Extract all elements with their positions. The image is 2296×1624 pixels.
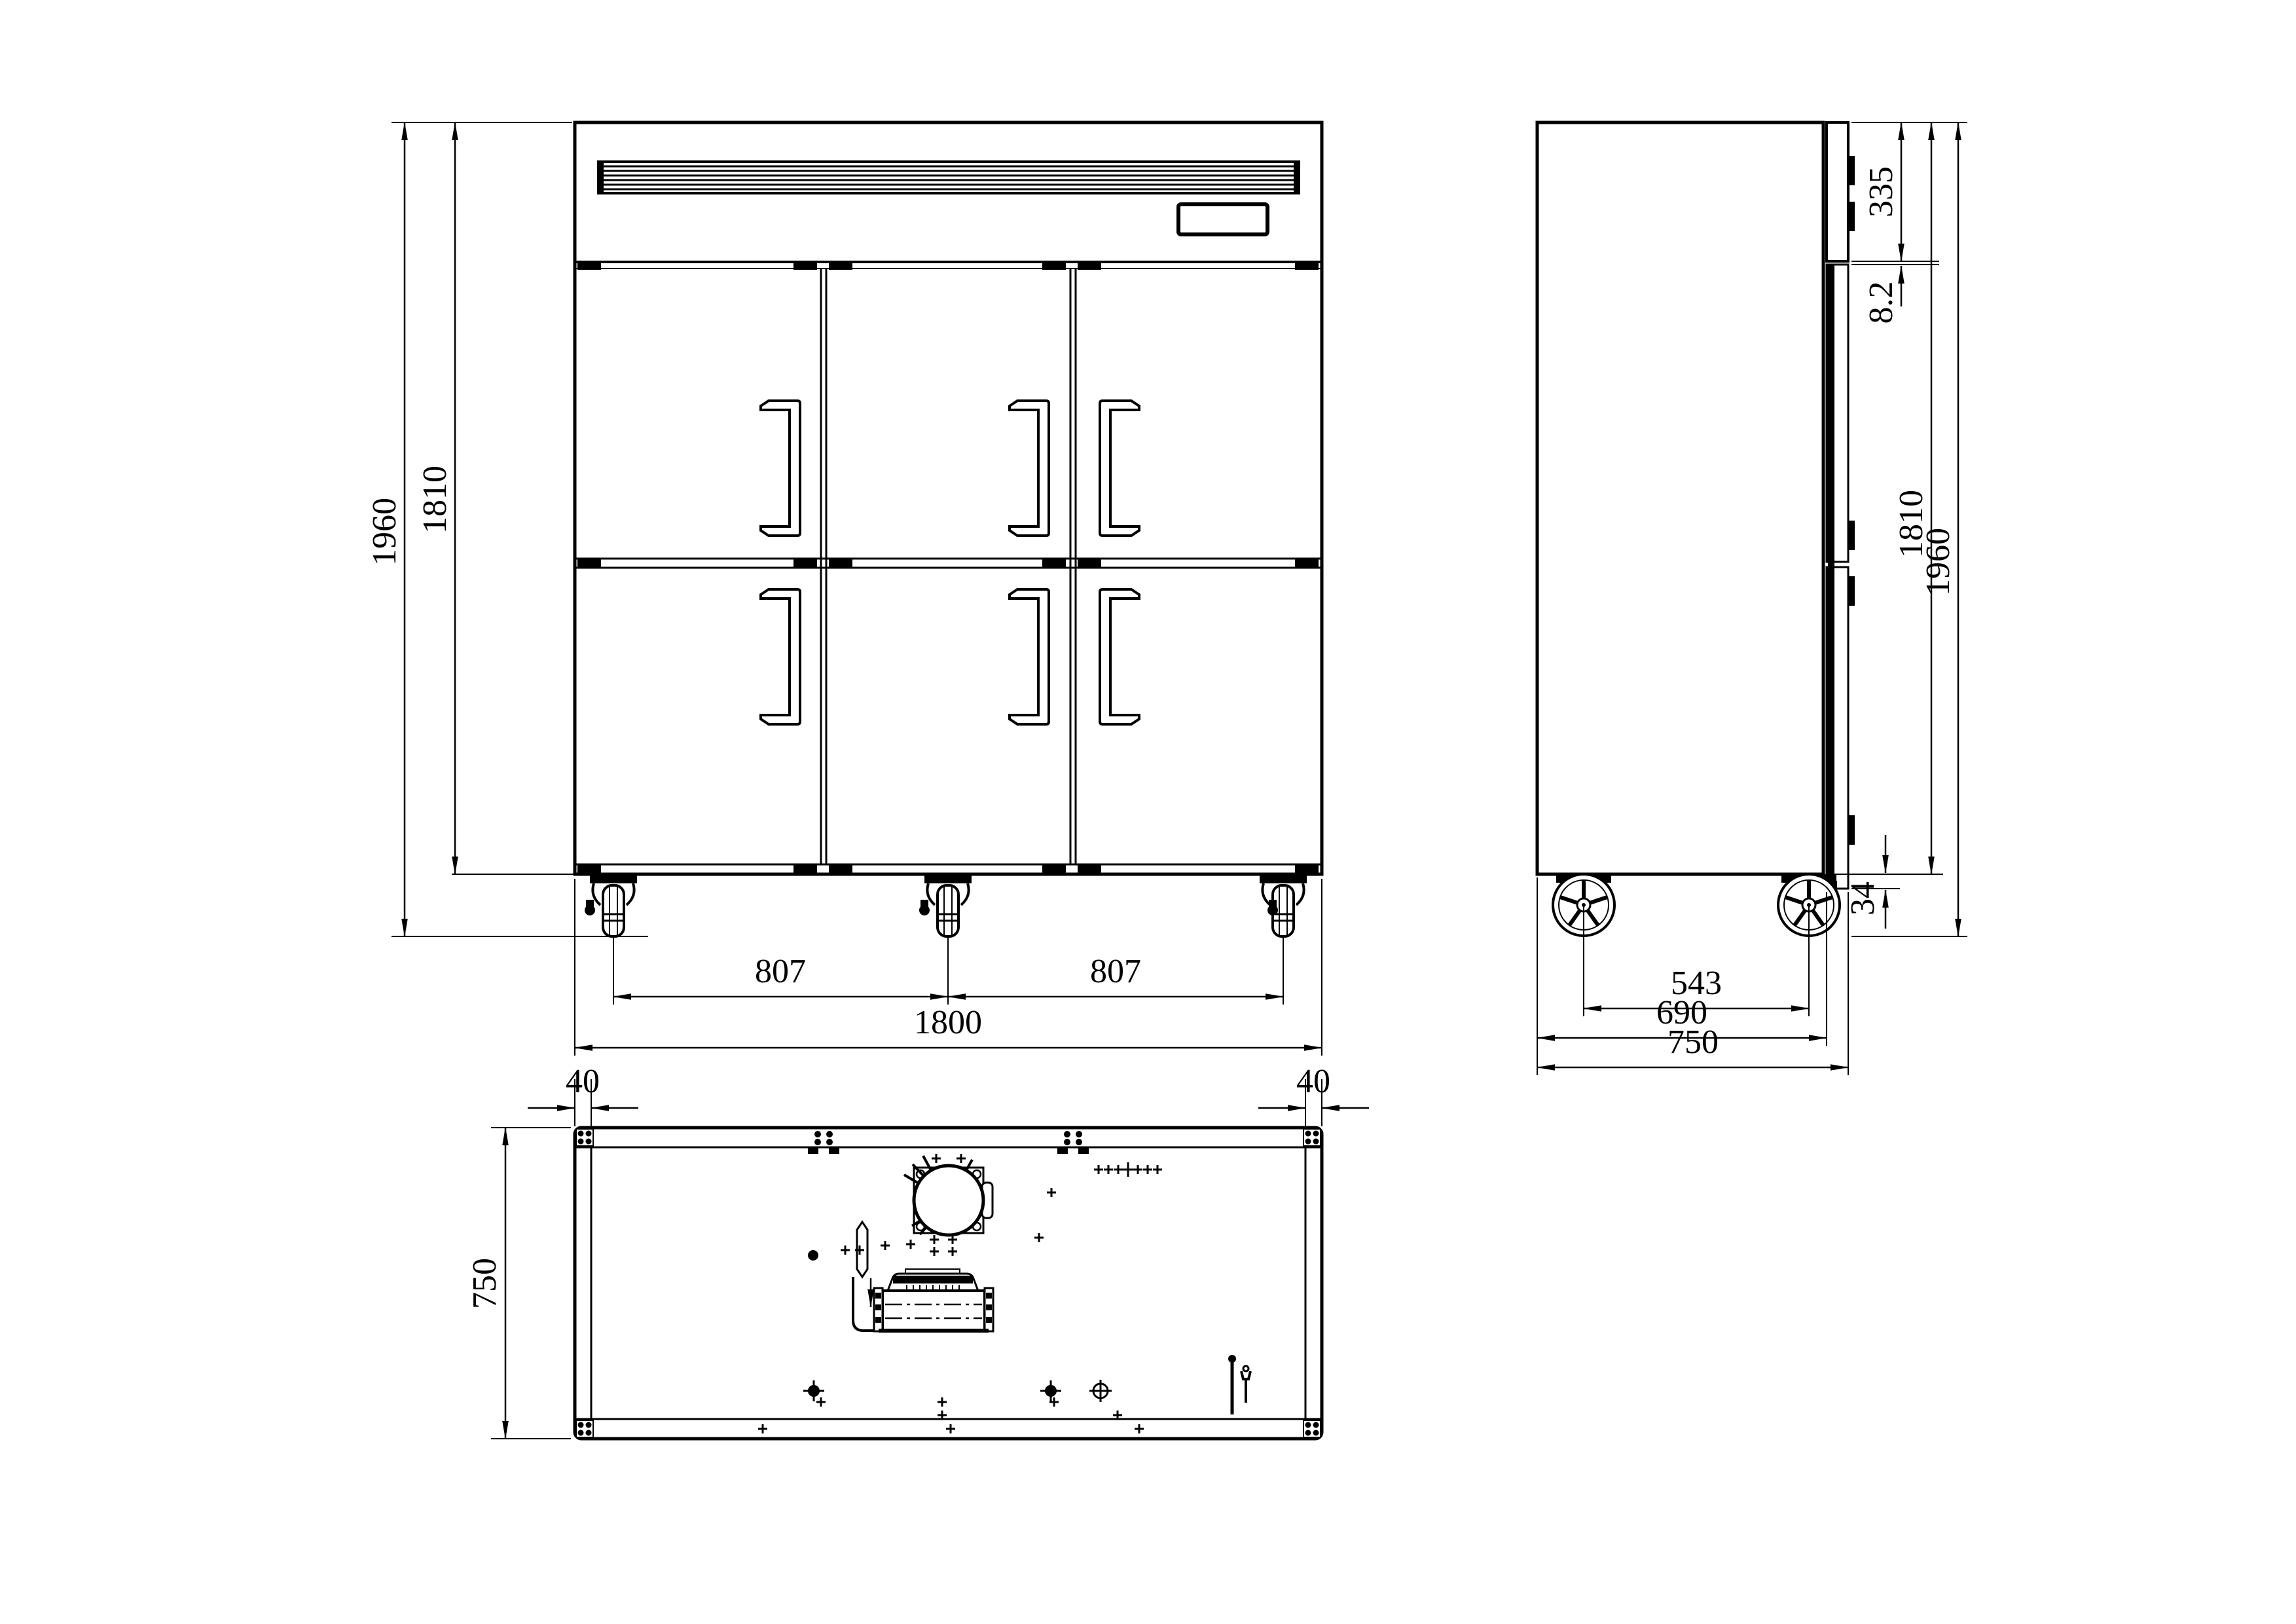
side-header-panel: [1827, 122, 1848, 261]
technical-drawing: 1960 1810 807 807 1800: [0, 0, 2296, 1624]
dim-side-door-bottom-offset: 34: [1844, 835, 1900, 929]
dim-label-front-overall-width: 1800: [914, 1004, 982, 1041]
plan-view: 750 40 40: [466, 1063, 1369, 1439]
caster-front-left: [585, 874, 637, 936]
control-panel: [1178, 204, 1267, 234]
fan-opening-circle: [914, 1166, 983, 1235]
side-body-outline: [1537, 122, 1823, 874]
door-gap-latch: [1828, 561, 1834, 568]
fan-opening: [904, 1156, 993, 1235]
drain-dot: [808, 1250, 818, 1261]
dim-label-plan-left-offset: 40: [566, 1063, 600, 1100]
dim-label-caster-spacing-right: 807: [1090, 953, 1141, 990]
dim-plan-depth: 750: [466, 1128, 571, 1439]
dim-front-caster-spacing: 807 807: [613, 938, 1283, 1005]
dim-label-caster-spacing-left: 807: [755, 953, 806, 990]
side-view: 335 8.2 1810 1960 34 543: [1537, 122, 1967, 1075]
dim-label-plan-right-offset: 40: [1296, 1063, 1330, 1100]
dim-plan-left-offset: 40: [528, 1063, 638, 1126]
dim-plan-right-offset: 40: [1258, 1063, 1369, 1126]
front-view: 1960 1810 807 807 1800: [366, 122, 1322, 1056]
caster-front-right: [1260, 874, 1307, 936]
dim-label-plan-depth: 750: [466, 1258, 503, 1309]
dim-side-top-panel: 335: [1851, 122, 1967, 265]
dim-label-side-door-bottom-offset: 34: [1844, 881, 1882, 915]
side-door-lower: [1827, 567, 1848, 889]
drawing-canvas: 1960 1810 807 807 1800: [0, 0, 2296, 1624]
side-door-upper: [1827, 265, 1848, 562]
ventilation-grille: [598, 162, 1299, 193]
compressor-body: [883, 1291, 985, 1331]
dim-label-front-overall-height: 1960: [366, 498, 403, 566]
dim-label-side-panel-door-gap: 8.2: [1863, 282, 1900, 324]
dim-label-side-overall-height: 1960: [1920, 528, 1957, 596]
dim-side-panel-door-gap: 8.2: [1863, 266, 1901, 324]
caster-front-middle: [919, 874, 972, 936]
dim-label-side-overall-depth: 750: [1667, 1024, 1719, 1061]
dim-label-front-body-height: 1810: [416, 466, 454, 534]
dim-label-side-top-panel: 335: [1863, 166, 1900, 217]
dim-front-body-height: 1810: [416, 122, 575, 874]
